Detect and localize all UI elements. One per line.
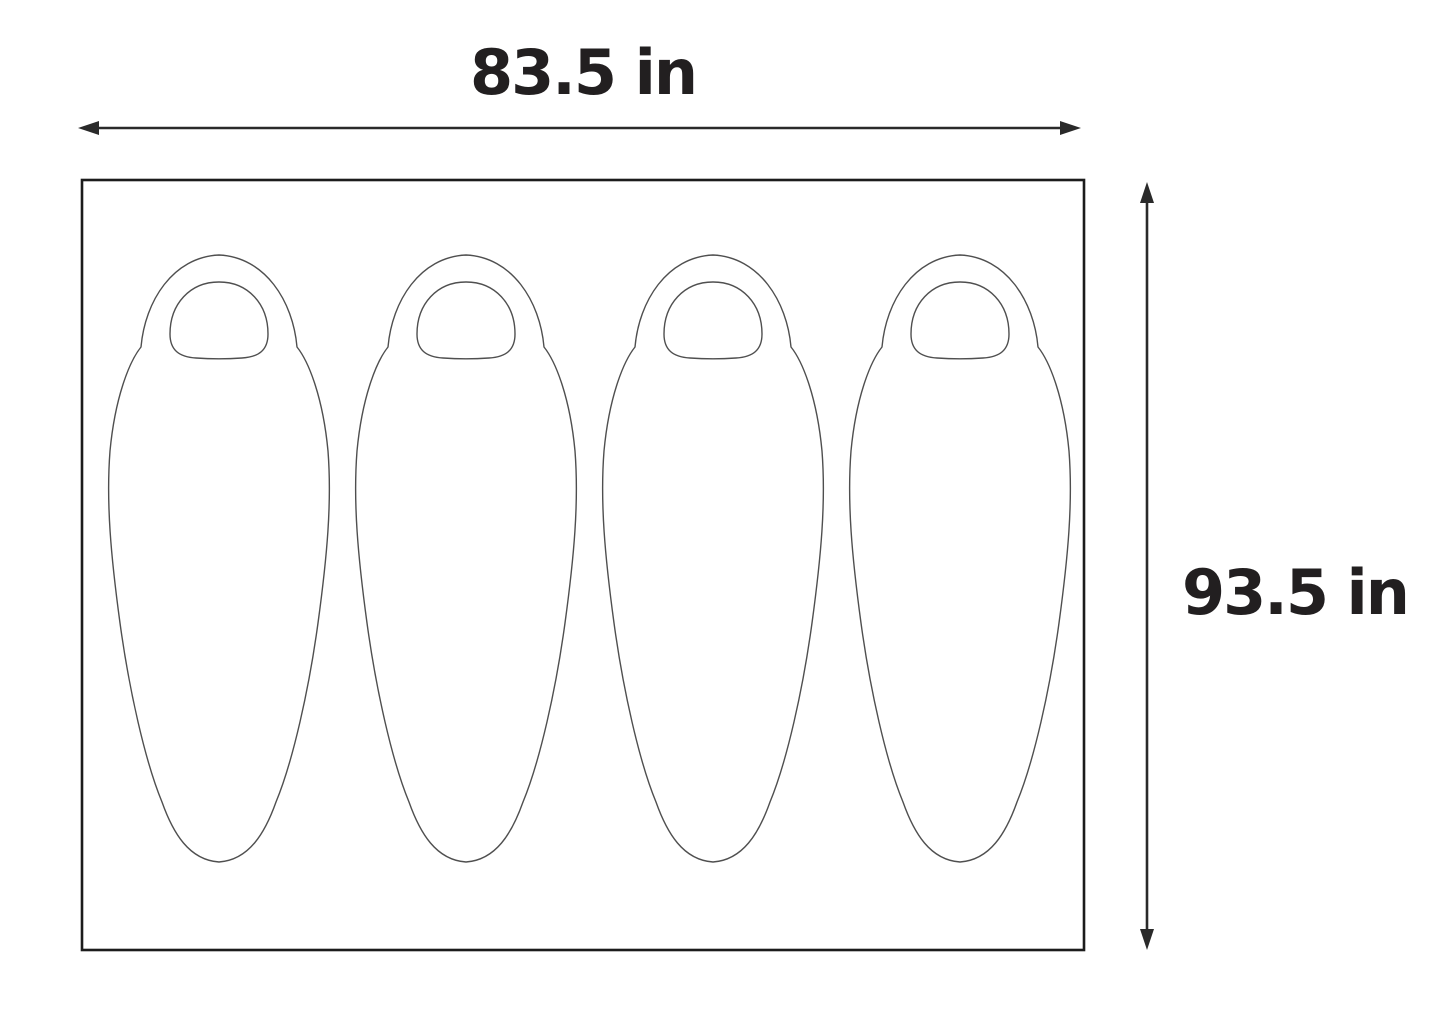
arrow-down-icon bbox=[1140, 929, 1154, 950]
sleeping-bag-outline bbox=[109, 255, 330, 862]
arrow-left-icon bbox=[78, 121, 99, 135]
height-dimension-label: 93.5 in bbox=[1182, 562, 1408, 624]
sleeping-bag-outline bbox=[356, 255, 577, 862]
tent-floor-diagram: 83.5 in 93.5 in bbox=[0, 0, 1445, 1035]
diagram-canvas bbox=[0, 0, 1445, 1035]
sleeping-bag-outline bbox=[850, 255, 1071, 862]
sleeping-bag-outline bbox=[603, 255, 824, 862]
width-dimension-arrow bbox=[78, 121, 1081, 135]
arrow-up-icon bbox=[1140, 182, 1154, 203]
sleeping-bags-group bbox=[109, 255, 1071, 862]
height-dimension-arrow bbox=[1140, 182, 1154, 950]
width-dimension-label: 83.5 in bbox=[82, 42, 1084, 104]
arrow-right-icon bbox=[1060, 121, 1081, 135]
